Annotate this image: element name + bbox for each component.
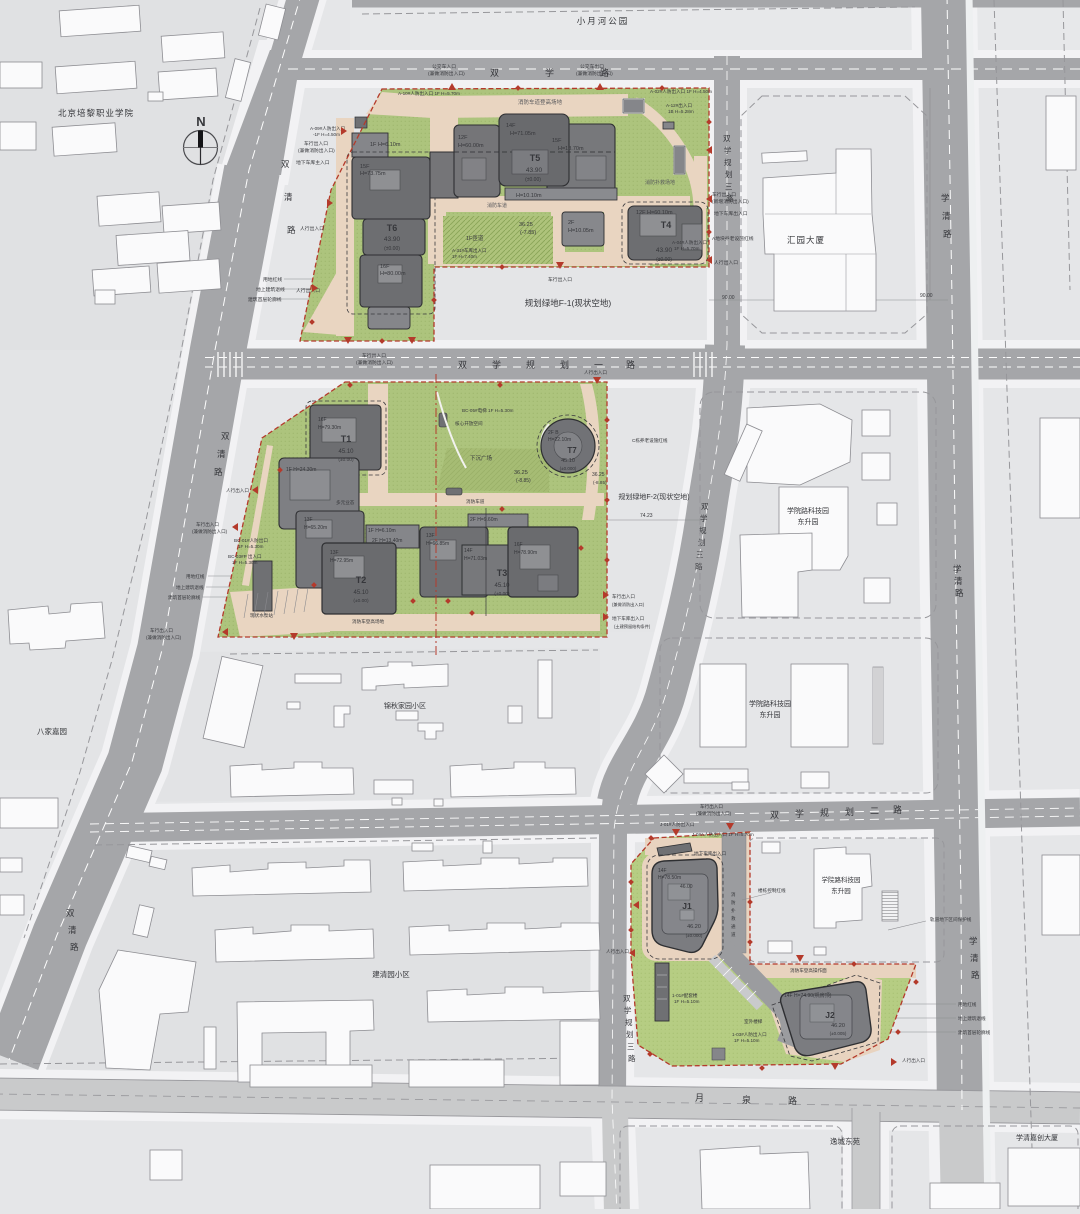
svg-text:公交车出口: 公交车出口 — [580, 63, 604, 70]
svg-text:43.90: 43.90 — [656, 247, 673, 254]
svg-text:T5: T5 — [530, 153, 541, 163]
svg-text:36.25: 36.25 — [519, 222, 533, 228]
svg-text:2F H=13.40m: 2F H=13.40m — [372, 538, 402, 544]
svg-text:1F H=5.70m: 1F H=5.70m — [674, 246, 700, 251]
svg-text:防: 防 — [731, 899, 736, 906]
svg-text:路: 路 — [626, 359, 635, 370]
svg-text:J1: J1 — [682, 901, 692, 911]
svg-text:划: 划 — [698, 537, 706, 547]
svg-text:楼栋控制红线: 楼栋控制红线 — [758, 887, 786, 894]
svg-text:学清嘉创大厦: 学清嘉创大厦 — [1016, 1133, 1058, 1142]
svg-text:(-7.85): (-7.85) — [520, 230, 536, 236]
svg-text:1F H=5.30m: 1F H=5.30m — [238, 544, 264, 549]
svg-text:路: 路 — [788, 1095, 797, 1106]
svg-text:A-12#出入口: A-12#出入口 — [666, 102, 692, 109]
svg-text:人行出入口: 人行出入口 — [902, 1057, 925, 1064]
svg-text:(±0.00): (±0.00) — [656, 257, 672, 263]
svg-text:核心开放空间: 核心开放空间 — [455, 420, 483, 427]
svg-text:(±0.00): (±0.00) — [338, 457, 354, 463]
svg-text:路: 路 — [695, 561, 703, 571]
svg-text:划: 划 — [626, 1029, 634, 1039]
svg-text:学: 学 — [953, 564, 962, 574]
svg-text:H=80.00m: H=80.00m — [380, 271, 406, 277]
svg-text:H=72.95m: H=72.95m — [330, 558, 353, 564]
svg-text:2F: 2F — [568, 220, 575, 226]
svg-text:(±0.00): (±0.00) — [353, 598, 369, 604]
svg-text:H=60.00m: H=60.00m — [458, 143, 484, 149]
svg-text:1B H=5.28m: 1B H=5.28m — [668, 109, 694, 114]
svg-text:43.90: 43.90 — [526, 167, 543, 174]
svg-text:地上建筑退线: 地上建筑退线 — [176, 584, 204, 591]
svg-text:45.10: 45.10 — [494, 583, 510, 589]
svg-text:H=65.20m: H=65.20m — [304, 525, 327, 531]
svg-text:16F: 16F — [514, 542, 523, 548]
svg-text:90.00: 90.00 — [920, 293, 933, 299]
svg-text:(±0.00): (±0.00) — [525, 177, 541, 183]
svg-text:36.25: 36.25 — [514, 470, 528, 476]
svg-text:学: 学 — [700, 513, 708, 523]
svg-text:46.00: 46.00 — [680, 884, 693, 890]
svg-text:学: 学 — [795, 808, 804, 819]
svg-text:A-04#人防出入口: A-04#人防出入口 — [672, 239, 708, 246]
svg-text:泉: 泉 — [742, 1094, 751, 1105]
svg-text:小月河公园: 小月河公园 — [577, 16, 630, 26]
svg-text:月: 月 — [695, 1093, 704, 1103]
svg-text:46.20: 46.20 — [831, 1023, 845, 1029]
svg-text:36.25: 36.25 — [592, 472, 605, 478]
svg-text:现状水泵站: 现状水泵站 — [250, 612, 273, 619]
svg-text:12F: 12F — [458, 135, 468, 141]
svg-text:路: 路 — [70, 942, 79, 952]
svg-text:消防车道: 消防车道 — [487, 202, 507, 209]
svg-text:多元业态: 多元业态 — [336, 499, 355, 506]
svg-text:74.23: 74.23 — [640, 513, 653, 519]
svg-text:地上建筑退线: 地上建筑退线 — [958, 1015, 986, 1022]
svg-text:BC-05#电梯 1F H=5.30m: BC-05#电梯 1F H=5.30m — [462, 407, 514, 414]
svg-text:A-31#车库出入口: A-31#车库出入口 — [452, 247, 487, 254]
svg-text:1-03#人防出入口: 1-03#人防出入口 — [732, 1031, 767, 1038]
svg-text:一: 一 — [594, 360, 603, 370]
svg-text:学院路科技园: 学院路科技园 — [787, 506, 829, 515]
svg-text:建筑首层轮廓线: 建筑首层轮廓线 — [168, 594, 201, 601]
svg-text:46.20: 46.20 — [687, 924, 701, 930]
svg-text:H=78.50m: H=78.50m — [658, 875, 681, 881]
svg-text:A-10#人防出入口 1F H=5.70m: A-10#人防出入口 1F H=5.70m — [398, 90, 460, 97]
svg-text:13F: 13F — [330, 550, 339, 556]
svg-text:A-02#人防出入口 1F H=4.50m: A-02#人防出入口 1F H=4.50m — [650, 88, 712, 95]
svg-text:轨道地下区间保护线: 轨道地下区间保护线 — [930, 916, 972, 923]
svg-text:建清园小区: 建清园小区 — [372, 969, 410, 979]
svg-text:用地红线: 用地红线 — [263, 276, 282, 283]
svg-text:道: 道 — [731, 931, 736, 938]
svg-text:H=78.90m: H=78.90m — [514, 550, 537, 556]
svg-text:学院路科技园: 学院路科技园 — [822, 875, 861, 884]
svg-text:(-8.85): (-8.85) — [516, 478, 531, 484]
svg-text:H=73.75m: H=73.75m — [360, 171, 386, 177]
svg-text:路: 路 — [287, 225, 296, 235]
svg-text:东升园: 东升园 — [798, 517, 819, 526]
svg-text:12F H=60.10m: 12F H=60.10m — [636, 210, 673, 216]
svg-text:1F H=7.40m: 1F H=7.40m — [452, 254, 477, 259]
svg-text:规: 规 — [724, 157, 732, 167]
svg-text:学: 学 — [545, 67, 554, 78]
svg-text:A地块养老设施红线: A地块养老设施红线 — [712, 235, 754, 242]
svg-text:BC-01#人防出口: BC-01#人防出口 — [234, 537, 268, 544]
svg-text:14F: 14F — [658, 868, 667, 874]
svg-text:(±0.00): (±0.00) — [494, 591, 510, 597]
svg-text:人行出入口: 人行出入口 — [584, 369, 607, 376]
svg-text:路: 路 — [955, 588, 964, 598]
svg-text:学院路科技园: 学院路科技园 — [749, 699, 791, 708]
svg-text:(-8.85): (-8.85) — [593, 480, 607, 485]
svg-text:地下车库出入口: 地下车库出入口 — [714, 210, 748, 217]
svg-text:双: 双 — [770, 810, 779, 820]
svg-text:清: 清 — [217, 449, 226, 459]
svg-text:T1: T1 — [341, 434, 352, 444]
svg-text:14F: 14F — [506, 123, 516, 129]
svg-text:T4: T4 — [661, 220, 672, 230]
svg-text:14F H=74.90(机房顶): 14F H=74.90(机房顶) — [784, 992, 832, 999]
svg-text:逸城东苑: 逸城东苑 — [830, 1136, 860, 1146]
svg-text:2F H=9.60m: 2F H=9.60m — [470, 517, 498, 523]
svg-text:规划绿地F-2(现状空地): 规划绿地F-2(现状空地) — [618, 492, 689, 501]
svg-text:车行出入口: 车行出入口 — [304, 140, 328, 147]
svg-text:H=66.85m: H=66.85m — [426, 541, 449, 547]
svg-text:消防车登高场地: 消防车登高场地 — [352, 618, 385, 625]
svg-text:45.10: 45.10 — [561, 458, 575, 464]
svg-text:(兼做消防出入口): (兼做消防出入口) — [298, 147, 335, 154]
svg-text:双: 双 — [701, 502, 709, 511]
svg-text:1F H=5.10m: 1F H=5.10m — [674, 999, 700, 1004]
svg-text:1F H=24.30m: 1F H=24.30m — [286, 467, 316, 473]
svg-text:车行出入口: 车行出入口 — [612, 593, 635, 600]
svg-text:北京培黎职业学院: 北京培黎职业学院 — [58, 108, 134, 118]
svg-text:规: 规 — [526, 360, 535, 370]
svg-text:双: 双 — [66, 908, 75, 918]
svg-text:H=22.10m: H=22.10m — [548, 437, 571, 443]
svg-text:三: 三 — [725, 182, 733, 191]
svg-text:1F匝道: 1F匝道 — [466, 234, 484, 242]
svg-text:双: 双 — [281, 159, 290, 169]
svg-text:消防车道: 消防车道 — [466, 498, 485, 505]
svg-text:人行出入口: 人行出入口 — [714, 259, 738, 266]
svg-text:东升园: 东升园 — [760, 710, 781, 719]
svg-text:学: 学 — [969, 936, 978, 946]
svg-text:双: 双 — [221, 431, 230, 441]
svg-text:BC-03#P 出入口: BC-03#P 出入口 — [228, 553, 262, 560]
svg-text:下沉广场: 下沉广场 — [470, 454, 493, 462]
svg-text:救: 救 — [731, 915, 736, 922]
svg-text:H=71.05m: H=71.05m — [510, 131, 536, 137]
svg-text:C栋养老设施红线: C栋养老设施红线 — [632, 437, 668, 444]
svg-text:15F: 15F — [552, 138, 562, 144]
svg-text:2F B: 2F B — [548, 430, 559, 436]
svg-text:人行出入口: 人行出入口 — [300, 225, 324, 232]
svg-text:(兼做消防出入口): (兼做消防出入口) — [146, 634, 182, 641]
svg-text:路: 路 — [628, 1053, 636, 1063]
svg-text:(±0.000): (±0.000) — [560, 466, 577, 471]
svg-text:路: 路 — [214, 467, 223, 477]
svg-text:(兼做消防出入口): (兼做消防出入口) — [612, 601, 645, 608]
svg-text:划: 划 — [560, 359, 569, 370]
svg-text:H=79.30m: H=79.30m — [318, 425, 341, 431]
svg-text:13F: 13F — [304, 517, 313, 523]
svg-text:消防车道登高场地: 消防车道登高场地 — [518, 98, 563, 106]
svg-text:车行出入口: 车行出入口 — [712, 191, 736, 198]
svg-text:学: 学 — [724, 145, 732, 155]
svg-text:14F: 14F — [464, 548, 473, 554]
svg-text:43.90: 43.90 — [384, 236, 401, 243]
svg-text:划: 划 — [845, 806, 854, 817]
svg-text:公交车入口: 公交车入口 — [432, 63, 456, 70]
svg-text:H=10.10m: H=10.10m — [516, 193, 542, 199]
svg-text:T2: T2 — [356, 575, 367, 585]
svg-text:清: 清 — [68, 925, 77, 935]
svg-text:16F: 16F — [318, 417, 327, 423]
svg-text:(±0.005): (±0.005) — [830, 1031, 847, 1036]
svg-text:1F H=5.10m: 1F H=5.10m — [734, 1038, 760, 1043]
svg-text:消: 消 — [731, 891, 736, 898]
svg-text:(土建预留结构条件): (土建预留结构条件) — [614, 623, 651, 630]
svg-text:1F H=5.30m: 1F H=5.30m — [232, 560, 258, 565]
svg-text:学: 学 — [492, 359, 501, 370]
svg-text:地下车库主入口: 地下车库主入口 — [296, 159, 330, 166]
svg-text:规: 规 — [820, 808, 829, 818]
svg-text:用地红线: 用地红线 — [958, 1001, 977, 1008]
svg-text:学: 学 — [941, 193, 950, 203]
svg-text:消防车登高操作面: 消防车登高操作面 — [790, 967, 827, 974]
svg-text:45.10: 45.10 — [338, 449, 354, 455]
svg-text:车行出入口: 车行出入口 — [548, 276, 572, 283]
svg-text:(新增消防出入口): (新增消防出入口) — [712, 198, 749, 205]
svg-text:锦秋家园小区: 锦秋家园小区 — [384, 701, 426, 710]
svg-text:通: 通 — [731, 923, 736, 930]
svg-text:T6: T6 — [387, 223, 398, 233]
svg-text:车行出入口: 车行出入口 — [700, 803, 723, 810]
svg-text:-1F H=4.50m: -1F H=4.50m — [313, 132, 340, 137]
svg-text:16F: 16F — [380, 264, 390, 270]
svg-text:T7: T7 — [567, 446, 577, 455]
svg-text:车行出入口: 车行出入口 — [196, 521, 219, 528]
svg-text:清: 清 — [954, 576, 963, 586]
svg-text:室外楼梯: 室外楼梯 — [744, 1018, 763, 1025]
svg-text:双: 双 — [458, 360, 467, 370]
svg-text:车行出入口: 车行出入口 — [150, 627, 173, 634]
svg-text:15F: 15F — [360, 164, 370, 170]
svg-text:H=10.05m: H=10.05m — [568, 228, 594, 234]
svg-text:H=71.03m: H=71.03m — [464, 556, 487, 562]
svg-text:J-01#人防出入口: J-01#人防出入口 — [660, 821, 695, 828]
svg-text:八家嘉园: 八家嘉园 — [37, 726, 67, 736]
svg-text:A-09#人防出入口: A-09#人防出入口 — [310, 125, 346, 132]
svg-text:清: 清 — [970, 953, 979, 963]
svg-text:(兼做消防出入口): (兼做消防出入口) — [428, 70, 465, 77]
svg-text:路: 路 — [893, 804, 902, 815]
svg-text:规: 规 — [625, 1017, 633, 1027]
svg-text:建筑首层轮廓线: 建筑首层轮廓线 — [248, 296, 282, 303]
svg-text:路: 路 — [971, 970, 980, 980]
svg-text:建筑首层轮廓线: 建筑首层轮廓线 — [958, 1029, 991, 1036]
svg-text:N: N — [196, 114, 205, 129]
svg-text:三: 三 — [627, 1042, 635, 1051]
svg-text:地下车库出入口: 地下车库出入口 — [612, 615, 645, 622]
svg-text:双: 双 — [490, 68, 499, 78]
svg-text:学: 学 — [624, 1005, 632, 1015]
svg-text:45.10: 45.10 — [353, 590, 369, 596]
svg-text:(兼做消防出入口): (兼做消防出入口) — [356, 359, 393, 366]
svg-text:J2: J2 — [825, 1010, 835, 1020]
svg-text:用地红线: 用地红线 — [186, 573, 205, 580]
svg-text:1F H=6.10m: 1F H=6.10m — [370, 142, 401, 148]
svg-text:双: 双 — [723, 134, 731, 143]
svg-text:清: 清 — [284, 192, 293, 202]
svg-text:规划绿地F-1(现状空地): 规划绿地F-1(现状空地) — [525, 298, 612, 308]
svg-text:划: 划 — [725, 169, 733, 179]
svg-text:消防扑救场地: 消防扑救场地 — [645, 179, 675, 186]
svg-text:(±0.000): (±0.000) — [686, 933, 703, 938]
svg-text:路: 路 — [943, 229, 952, 239]
svg-text:T3: T3 — [497, 568, 508, 578]
svg-text:车行出入口: 车行出入口 — [362, 352, 386, 359]
svg-text:东升园: 东升园 — [831, 886, 851, 895]
svg-text:二: 二 — [870, 806, 879, 816]
svg-text:13F: 13F — [426, 533, 435, 539]
svg-text:汇园大厦: 汇园大厦 — [787, 235, 825, 245]
svg-text:(兼做消防出入口): (兼做消防出入口) — [192, 528, 228, 535]
svg-text:90.00: 90.00 — [722, 295, 735, 301]
svg-text:(±0.00): (±0.00) — [384, 246, 400, 252]
svg-text:H=18.70m: H=18.70m — [558, 146, 584, 152]
svg-text:人行出入口: 人行出入口 — [226, 487, 249, 494]
svg-text:1F H=6.10m: 1F H=6.10m — [368, 528, 396, 534]
svg-text:1-01#配套楼: 1-01#配套楼 — [672, 992, 698, 999]
svg-text:(兼做消防出入口): (兼做消防出入口) — [576, 70, 613, 77]
svg-text:(兼做消防出入口): (兼做消防出入口) — [696, 810, 732, 817]
svg-text:地上建筑退线: 地上建筑退线 — [256, 286, 285, 293]
svg-text:J-0#A人防出入口 1F H=5.70m: J-0#A人防出入口 1F H=5.70m — [692, 831, 754, 838]
svg-text:人行出入口: 人行出入口 — [606, 948, 629, 955]
svg-text:双: 双 — [623, 994, 631, 1003]
svg-text:扑: 扑 — [731, 907, 736, 914]
svg-text:清: 清 — [942, 211, 951, 221]
